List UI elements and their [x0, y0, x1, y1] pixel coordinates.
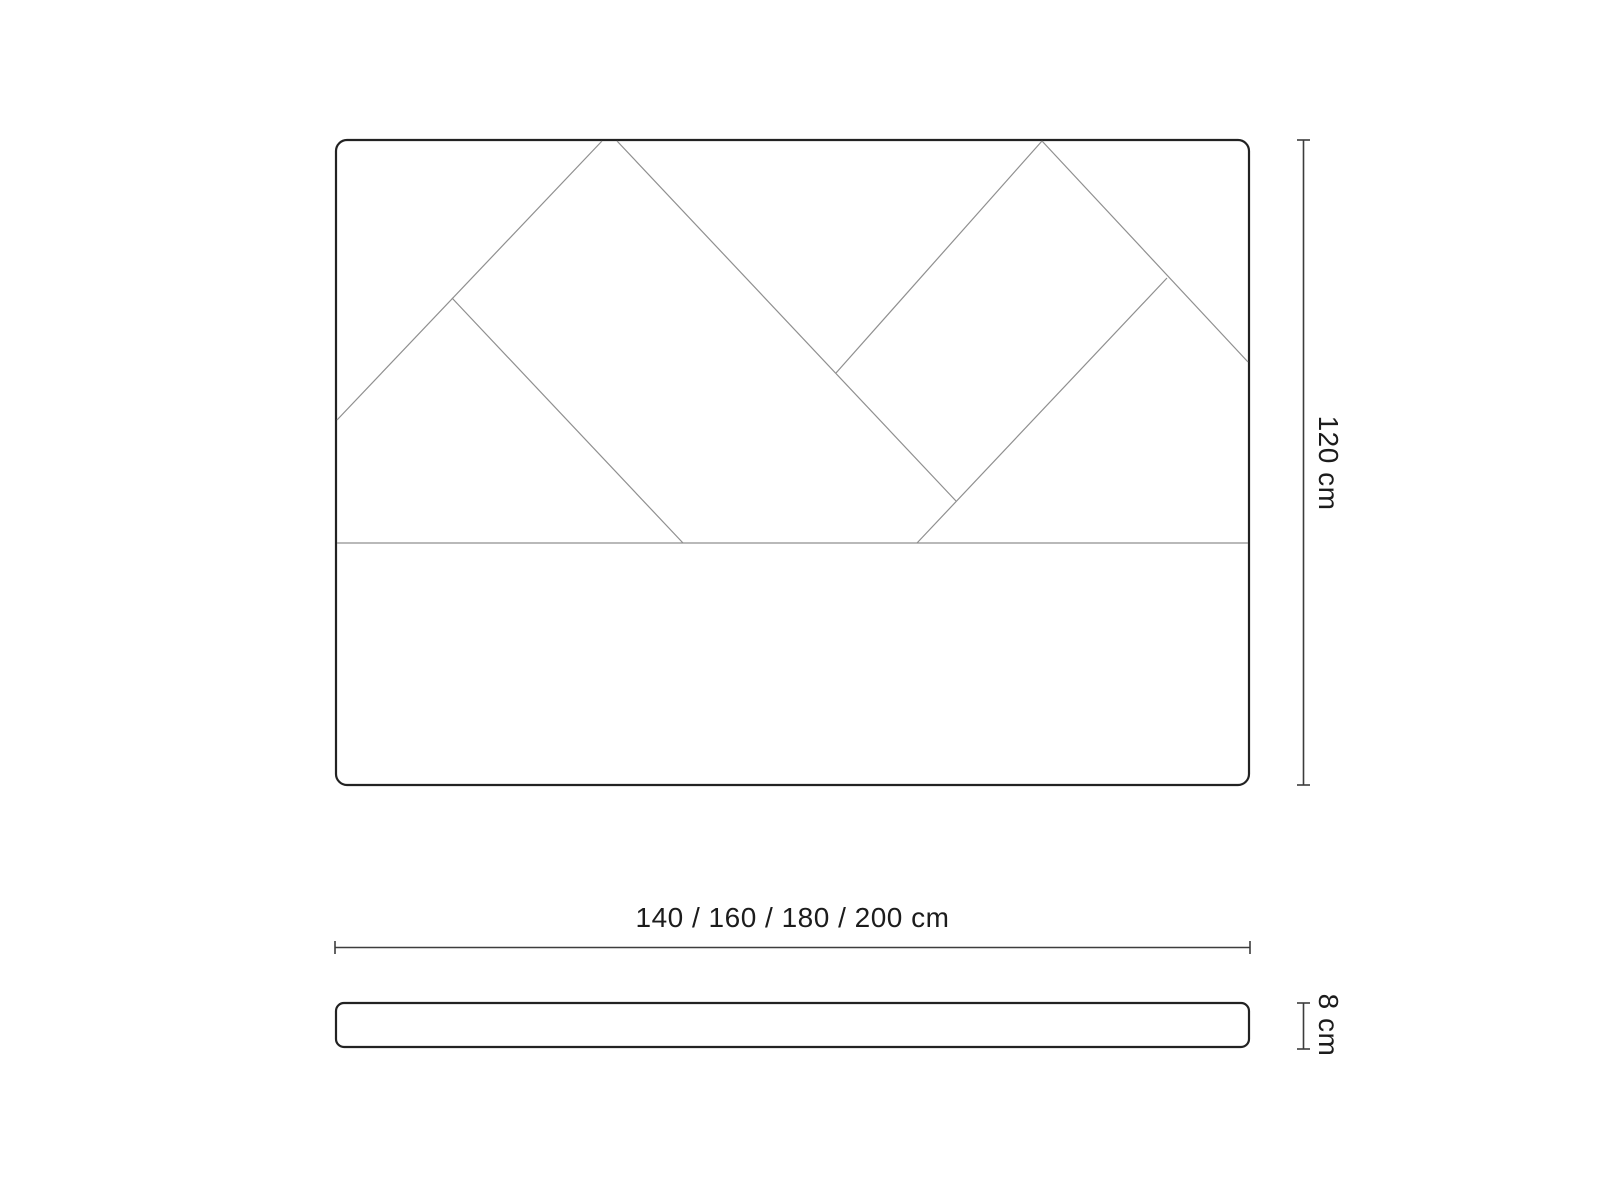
pattern-line-1 — [337, 141, 602, 420]
dimension-diagram: 120 cm 140 / 160 / 180 / 200 cm 8 cm — [0, 0, 1600, 1200]
width-dimension-label: 140 / 160 / 180 / 200 cm — [336, 904, 1249, 932]
height-dimension-line — [1297, 140, 1310, 785]
width-dimension-line — [335, 941, 1250, 954]
thickness-dimension-label: 8 cm — [1314, 994, 1342, 1057]
pattern-line-4 — [836, 141, 1042, 373]
diagram-canvas — [0, 0, 1600, 1200]
panel-pattern — [337, 141, 1248, 543]
height-dimension-label: 120 cm — [1314, 416, 1342, 511]
pattern-line-3 — [617, 141, 956, 501]
front-view-outline — [336, 140, 1249, 785]
thickness-dimension-line — [1297, 1003, 1310, 1049]
pattern-line-6 — [917, 278, 1167, 543]
side-view-outline — [336, 1003, 1249, 1047]
pattern-line-2 — [452, 298, 683, 543]
pattern-line-5 — [1042, 141, 1248, 362]
